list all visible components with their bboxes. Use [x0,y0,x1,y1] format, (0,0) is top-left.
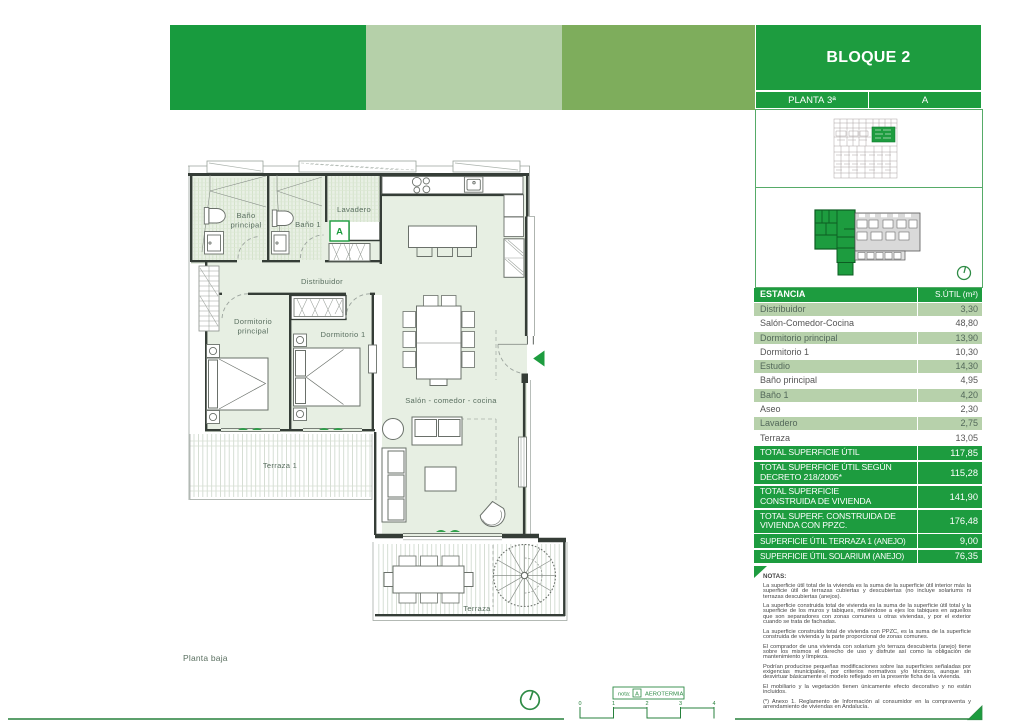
svg-text:AEROTERMIA: AEROTERMIA [645,692,683,698]
svg-text:Dormitorio 1: Dormitorio 1 [321,330,366,339]
svg-text:4: 4 [712,701,715,707]
svg-text:Terraza 1: Terraza 1 [263,461,297,470]
svg-text:3: 3 [679,701,682,707]
svg-text:0: 0 [578,701,581,707]
svg-text:Baño 1: Baño 1 [295,220,321,229]
svg-text:Terraza: Terraza [463,604,491,613]
svg-text:2: 2 [645,701,648,707]
svg-text:Lavadero: Lavadero [337,205,371,214]
svg-text:nota:: nota: [618,692,631,698]
svg-text:Baño: Baño [237,211,256,220]
svg-text:Dormitorio: Dormitorio [234,317,272,326]
svg-text:Salón - comedor - cocina: Salón - comedor - cocina [405,396,497,405]
svg-text:principal: principal [231,221,262,230]
svg-text:principal: principal [238,327,269,336]
svg-text:A: A [635,691,639,697]
svg-text:1: 1 [612,701,615,707]
svg-text:A: A [336,227,343,238]
svg-text:Distribuidor: Distribuidor [301,277,343,286]
